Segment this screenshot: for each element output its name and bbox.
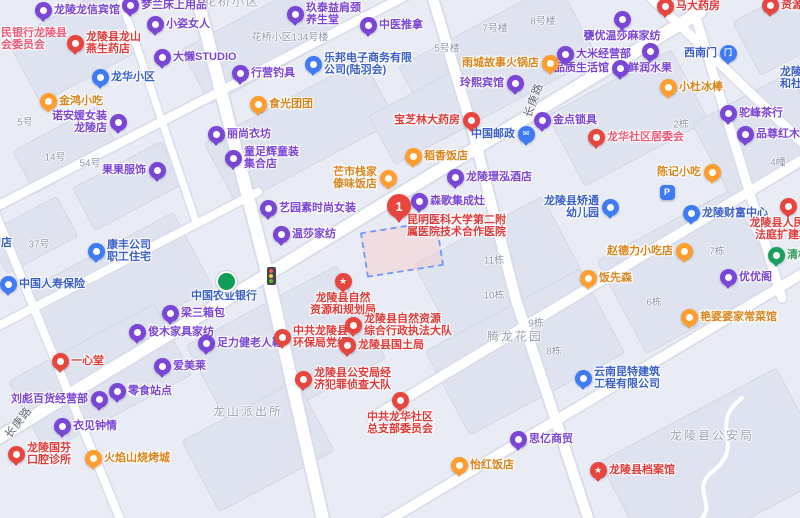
lock-icon[interactable] <box>534 112 551 129</box>
poi-label: 雨城故事火锅店 <box>462 57 539 69</box>
shop-icon[interactable] <box>154 358 171 375</box>
building-number-label: 11栋 <box>484 252 504 267</box>
area-label: 龙陵县公安局 <box>670 427 754 444</box>
poi-label: 梦兰床上用品 <box>141 0 207 11</box>
pin-glyph: ✉ <box>518 126 535 143</box>
building-number-label: 花桥小区134号楼 <box>252 29 329 44</box>
pharmacy-icon[interactable] <box>762 0 779 14</box>
poi-label: 宝芝林大药房 <box>394 114 460 126</box>
building-number-label: 5号楼 <box>434 40 460 55</box>
poi-label: 中国农业银行 <box>191 290 257 302</box>
poi-label: 龙陵国芬口腔诊所 <box>27 442 71 466</box>
kindergarten-icon[interactable] <box>602 199 619 216</box>
bedding-icon[interactable] <box>614 11 631 28</box>
edge-poi-label: 民银行龙陵县会委员会 <box>1 27 67 51</box>
poi-label: 爱美莱 <box>173 360 206 372</box>
bedding-icon[interactable] <box>273 226 290 243</box>
poi-label: 龙陵璟泓酒店 <box>466 171 532 183</box>
poi-label: 资源 <box>781 0 800 11</box>
poi-label: 中医推拿 <box>379 19 423 31</box>
bbq-icon[interactable] <box>85 450 102 467</box>
pin-glyph: ★ <box>590 462 607 479</box>
poi-label: 陈记小吃 <box>657 166 701 178</box>
poi-label: 龙陵县国土局 <box>358 339 424 351</box>
wellness-icon[interactable] <box>287 6 304 23</box>
park-icon[interactable] <box>768 247 785 264</box>
company-icon[interactable] <box>575 370 592 387</box>
restaurant-icon[interactable] <box>681 309 698 326</box>
poi-label: 小姿女人 <box>166 18 210 30</box>
poi-label: 稻香饭店 <box>424 150 468 162</box>
snack-icon[interactable] <box>109 383 126 400</box>
poi-label: 怡红饭店 <box>470 459 514 471</box>
building-number-label: 2栋 <box>673 116 689 131</box>
shop-icon[interactable] <box>720 269 737 286</box>
poi-label: 艳婆婆家常菜馆 <box>700 311 777 323</box>
area-label: 龙山派出所 <box>213 403 283 420</box>
traffic-light-icon[interactable] <box>267 267 276 285</box>
kids-clothing-icon[interactable] <box>225 150 242 167</box>
food-icon[interactable] <box>704 164 721 181</box>
building-number-label: 7号楼 <box>482 20 508 35</box>
furniture-icon[interactable] <box>129 324 146 341</box>
poi-label: 童足辉童装集合店 <box>244 146 299 170</box>
archive-icon[interactable]: ★ <box>590 462 607 479</box>
selected-result-1-pin[interactable]: 1 <box>387 194 411 218</box>
clothing-icon[interactable] <box>147 16 164 33</box>
trade-icon[interactable] <box>510 431 527 448</box>
poi-label: 龙华小区 <box>111 71 155 83</box>
restaurant-icon[interactable] <box>380 170 397 187</box>
furniture-icon[interactable] <box>737 126 754 143</box>
area-label: 花桥小区 <box>204 0 260 10</box>
poi-label: 龙陵县公安局经济犯罪侦查大队 <box>314 367 391 391</box>
clothing-icon[interactable] <box>54 418 71 435</box>
building-number-label: 4幢 <box>770 154 786 169</box>
pin-glyph: 1 <box>387 194 411 218</box>
building-number-label: 10栋 <box>483 287 504 302</box>
pharmacy-icon[interactable] <box>463 112 480 129</box>
poi-label: 驼峰茶行 <box>739 107 783 119</box>
government-icon[interactable] <box>780 198 797 215</box>
food-icon[interactable] <box>676 243 693 260</box>
building-number-label: 7栋 <box>709 243 725 258</box>
poi-label: 金点锁具 <box>553 114 597 126</box>
poi-label: 中国人寿保险 <box>19 278 85 290</box>
pin-glyph: 门 <box>720 45 737 62</box>
building-number-label: 9栋 <box>528 315 544 330</box>
government-icon[interactable] <box>339 337 356 354</box>
poi-label: 龙陵县人民法院法庭扩建项目 <box>750 217 800 241</box>
building-number-label: 8栋 <box>546 343 562 358</box>
poi-label: 金鸿小吃 <box>59 95 103 107</box>
pharmacy-icon[interactable] <box>67 35 84 52</box>
poi-label: 饭先森 <box>599 272 632 284</box>
poi-label: 衣见钟情 <box>73 420 117 432</box>
poi-label: 丽尚衣坊 <box>227 128 271 140</box>
government-icon[interactable] <box>274 329 291 346</box>
food-icon[interactable] <box>250 96 267 113</box>
poi-label: 足力健老人鞋 <box>217 337 283 349</box>
fruit-icon[interactable] <box>642 43 659 60</box>
company-icon[interactable] <box>305 56 322 73</box>
poi-label: 大米经营部 <box>576 48 631 60</box>
poi-label: 思亿商贸 <box>529 433 573 445</box>
building-number-label: 6栋 <box>646 294 662 309</box>
poi-label: 玖泰益肩颈养生堂 <box>306 2 361 26</box>
bag-icon[interactable] <box>162 305 179 322</box>
restaurant-icon[interactable] <box>405 148 422 165</box>
poi-label: 小杜冰棒 <box>679 81 723 93</box>
building-number-label: 5号 <box>17 114 33 129</box>
poi-label: 云南昆特建筑工程有限公司 <box>594 366 660 390</box>
building-number-label: 14号 <box>44 149 65 164</box>
poi-label: 玲熙宾馆 <box>460 77 504 89</box>
poi-label: 一心堂 <box>71 355 104 367</box>
building-number-label: 37号 <box>28 236 49 251</box>
map-canvas[interactable]: 龙陵龙信宾馆梦兰床上用品小姿女人玖泰益肩颈养生堂中医推拿马大药房资源龙陵县龙山燕… <box>0 0 800 518</box>
poi-label: 艺园素时尚女装 <box>279 202 356 214</box>
poi-label: 火焰山烧烤城 <box>104 452 170 464</box>
fishing-icon[interactable] <box>232 65 249 82</box>
lifestyle-icon[interactable] <box>612 60 629 77</box>
hotel-bed-icon[interactable] <box>35 2 52 19</box>
poi-label: 诺安媛女装龙陵店 <box>52 110 107 134</box>
clothing-icon[interactable] <box>149 162 166 179</box>
poi-label: 森歌集成灶 <box>430 195 485 207</box>
hotel-bed-icon[interactable] <box>507 75 524 92</box>
poi-label: 龙陵县档案馆 <box>609 464 675 476</box>
poi-label: 康丰公司职工住宅 <box>107 239 151 263</box>
gate-icon[interactable]: 门 <box>720 45 737 62</box>
pharmacy-icon[interactable] <box>657 0 674 15</box>
building-number-label: 8号楼 <box>530 13 556 28</box>
poi-label: 芒市栈家傣味饭店 <box>333 166 377 190</box>
insurance-icon[interactable] <box>0 276 17 293</box>
pin-glyph: P <box>660 185 675 200</box>
poi-label: 龙陵龙信宾馆 <box>54 4 120 16</box>
government-star-icon[interactable]: ★ <box>335 273 352 290</box>
government-icon[interactable] <box>392 392 409 409</box>
rice-shop-icon[interactable] <box>557 46 574 63</box>
food-icon[interactable] <box>40 93 57 110</box>
residence-icon[interactable] <box>88 243 105 260</box>
poi-label: 马大药房 <box>676 0 720 12</box>
clothing-icon[interactable] <box>260 200 277 217</box>
massage-icon[interactable] <box>360 17 377 34</box>
hotpot-icon[interactable] <box>542 55 559 72</box>
poi-label: 乐邦电子商务有限公司(陆羽会) <box>324 52 412 76</box>
poi-label: 品尊红木 <box>756 128 800 140</box>
poi-label: 大懒STUDIO <box>173 51 237 63</box>
icecream-icon[interactable] <box>660 79 677 96</box>
building-number-label: 54号 <box>79 155 100 170</box>
store-icon[interactable] <box>91 391 108 408</box>
office-building-icon[interactable] <box>683 205 700 222</box>
poi-label: 龙陵县自然资源综合行政执法大队 <box>364 313 452 337</box>
pin-glyph: ★ <box>335 273 352 290</box>
bedding-icon[interactable] <box>122 0 139 14</box>
edge-poi-label: 龙陵和社 <box>780 66 800 90</box>
poi-label: 昆明医科大学第二附属医院技术合作医院 <box>407 214 506 238</box>
tea-icon[interactable] <box>720 105 737 122</box>
clothing-icon[interactable] <box>110 114 127 131</box>
poi-label: 赵德力小吃店 <box>607 245 673 257</box>
hotel-bed-icon[interactable] <box>447 169 464 186</box>
poi-label: 清板 <box>787 249 800 261</box>
area-label: 腾龙花园 <box>487 328 543 345</box>
clothing-icon[interactable] <box>208 126 225 143</box>
poi-label: 龙陵县龙山燕生药店 <box>86 31 141 55</box>
police-icon[interactable] <box>295 371 312 388</box>
poi-label: 果果服饰 <box>102 164 146 176</box>
poi-label: 温莎家纺 <box>292 228 336 240</box>
poi-label: 龙华社区居委会 <box>607 131 684 143</box>
poi-label: 西南门 <box>684 47 717 59</box>
parking-icon[interactable]: P <box>660 185 675 200</box>
edge-poi-label: 店 <box>1 237 12 249</box>
appliance-icon[interactable] <box>411 193 428 210</box>
poi-label: 优优阁 <box>739 271 772 283</box>
community-icon[interactable] <box>588 129 605 146</box>
restaurant-icon[interactable] <box>451 457 468 474</box>
studio-icon[interactable] <box>154 49 171 66</box>
restaurant-icon[interactable] <box>580 270 597 287</box>
residence-icon[interactable] <box>92 69 109 86</box>
pharmacy-icon[interactable] <box>52 353 69 370</box>
poi-label: 食光团团 <box>269 98 313 110</box>
shoes-icon[interactable] <box>198 335 215 352</box>
poi-label: 中国邮政 <box>471 128 515 140</box>
poi-label: 梁三箱包 <box>181 307 225 319</box>
bank-abc-icon[interactable] <box>216 271 237 292</box>
poi-label: 行营钓具 <box>251 67 295 79</box>
postal-icon[interactable]: ✉ <box>518 126 535 143</box>
poi-label: 零食站点 <box>128 385 172 397</box>
poi-label: 龙陵县矫通幼儿园 <box>544 195 599 219</box>
dental-icon[interactable] <box>8 446 25 463</box>
government-icon[interactable] <box>345 317 362 334</box>
